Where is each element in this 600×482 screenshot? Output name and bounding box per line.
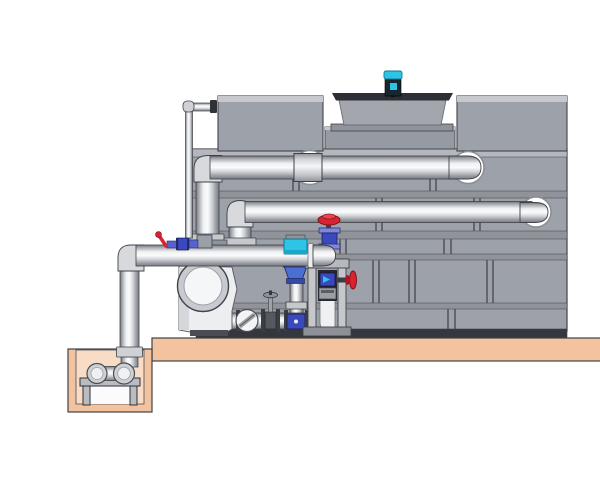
drain-valve-handwheel (350, 271, 357, 289)
sump-pit (68, 349, 152, 412)
diagram-canvas (40, 16, 600, 466)
control-valve-actuator (284, 235, 307, 254)
equipment-pad (152, 338, 600, 361)
check-valve (236, 310, 258, 332)
rack-elbow-pipe (320, 300, 335, 330)
motor-window (390, 83, 397, 90)
overflow-elbow (183, 101, 194, 112)
pipe2-end-dome (520, 203, 548, 223)
fan-motor (384, 71, 402, 97)
pipe3-collar (117, 347, 143, 357)
pit-floor-gap (90, 386, 130, 404)
pipe3-end-cap (313, 245, 336, 266)
fan-cowl (331, 93, 453, 131)
pipe1-sleeve-coupling (294, 154, 322, 182)
pipe1-end-dome (449, 156, 481, 179)
cooling-tower-piping-illustration (40, 16, 600, 466)
circulation-pump (178, 261, 238, 337)
